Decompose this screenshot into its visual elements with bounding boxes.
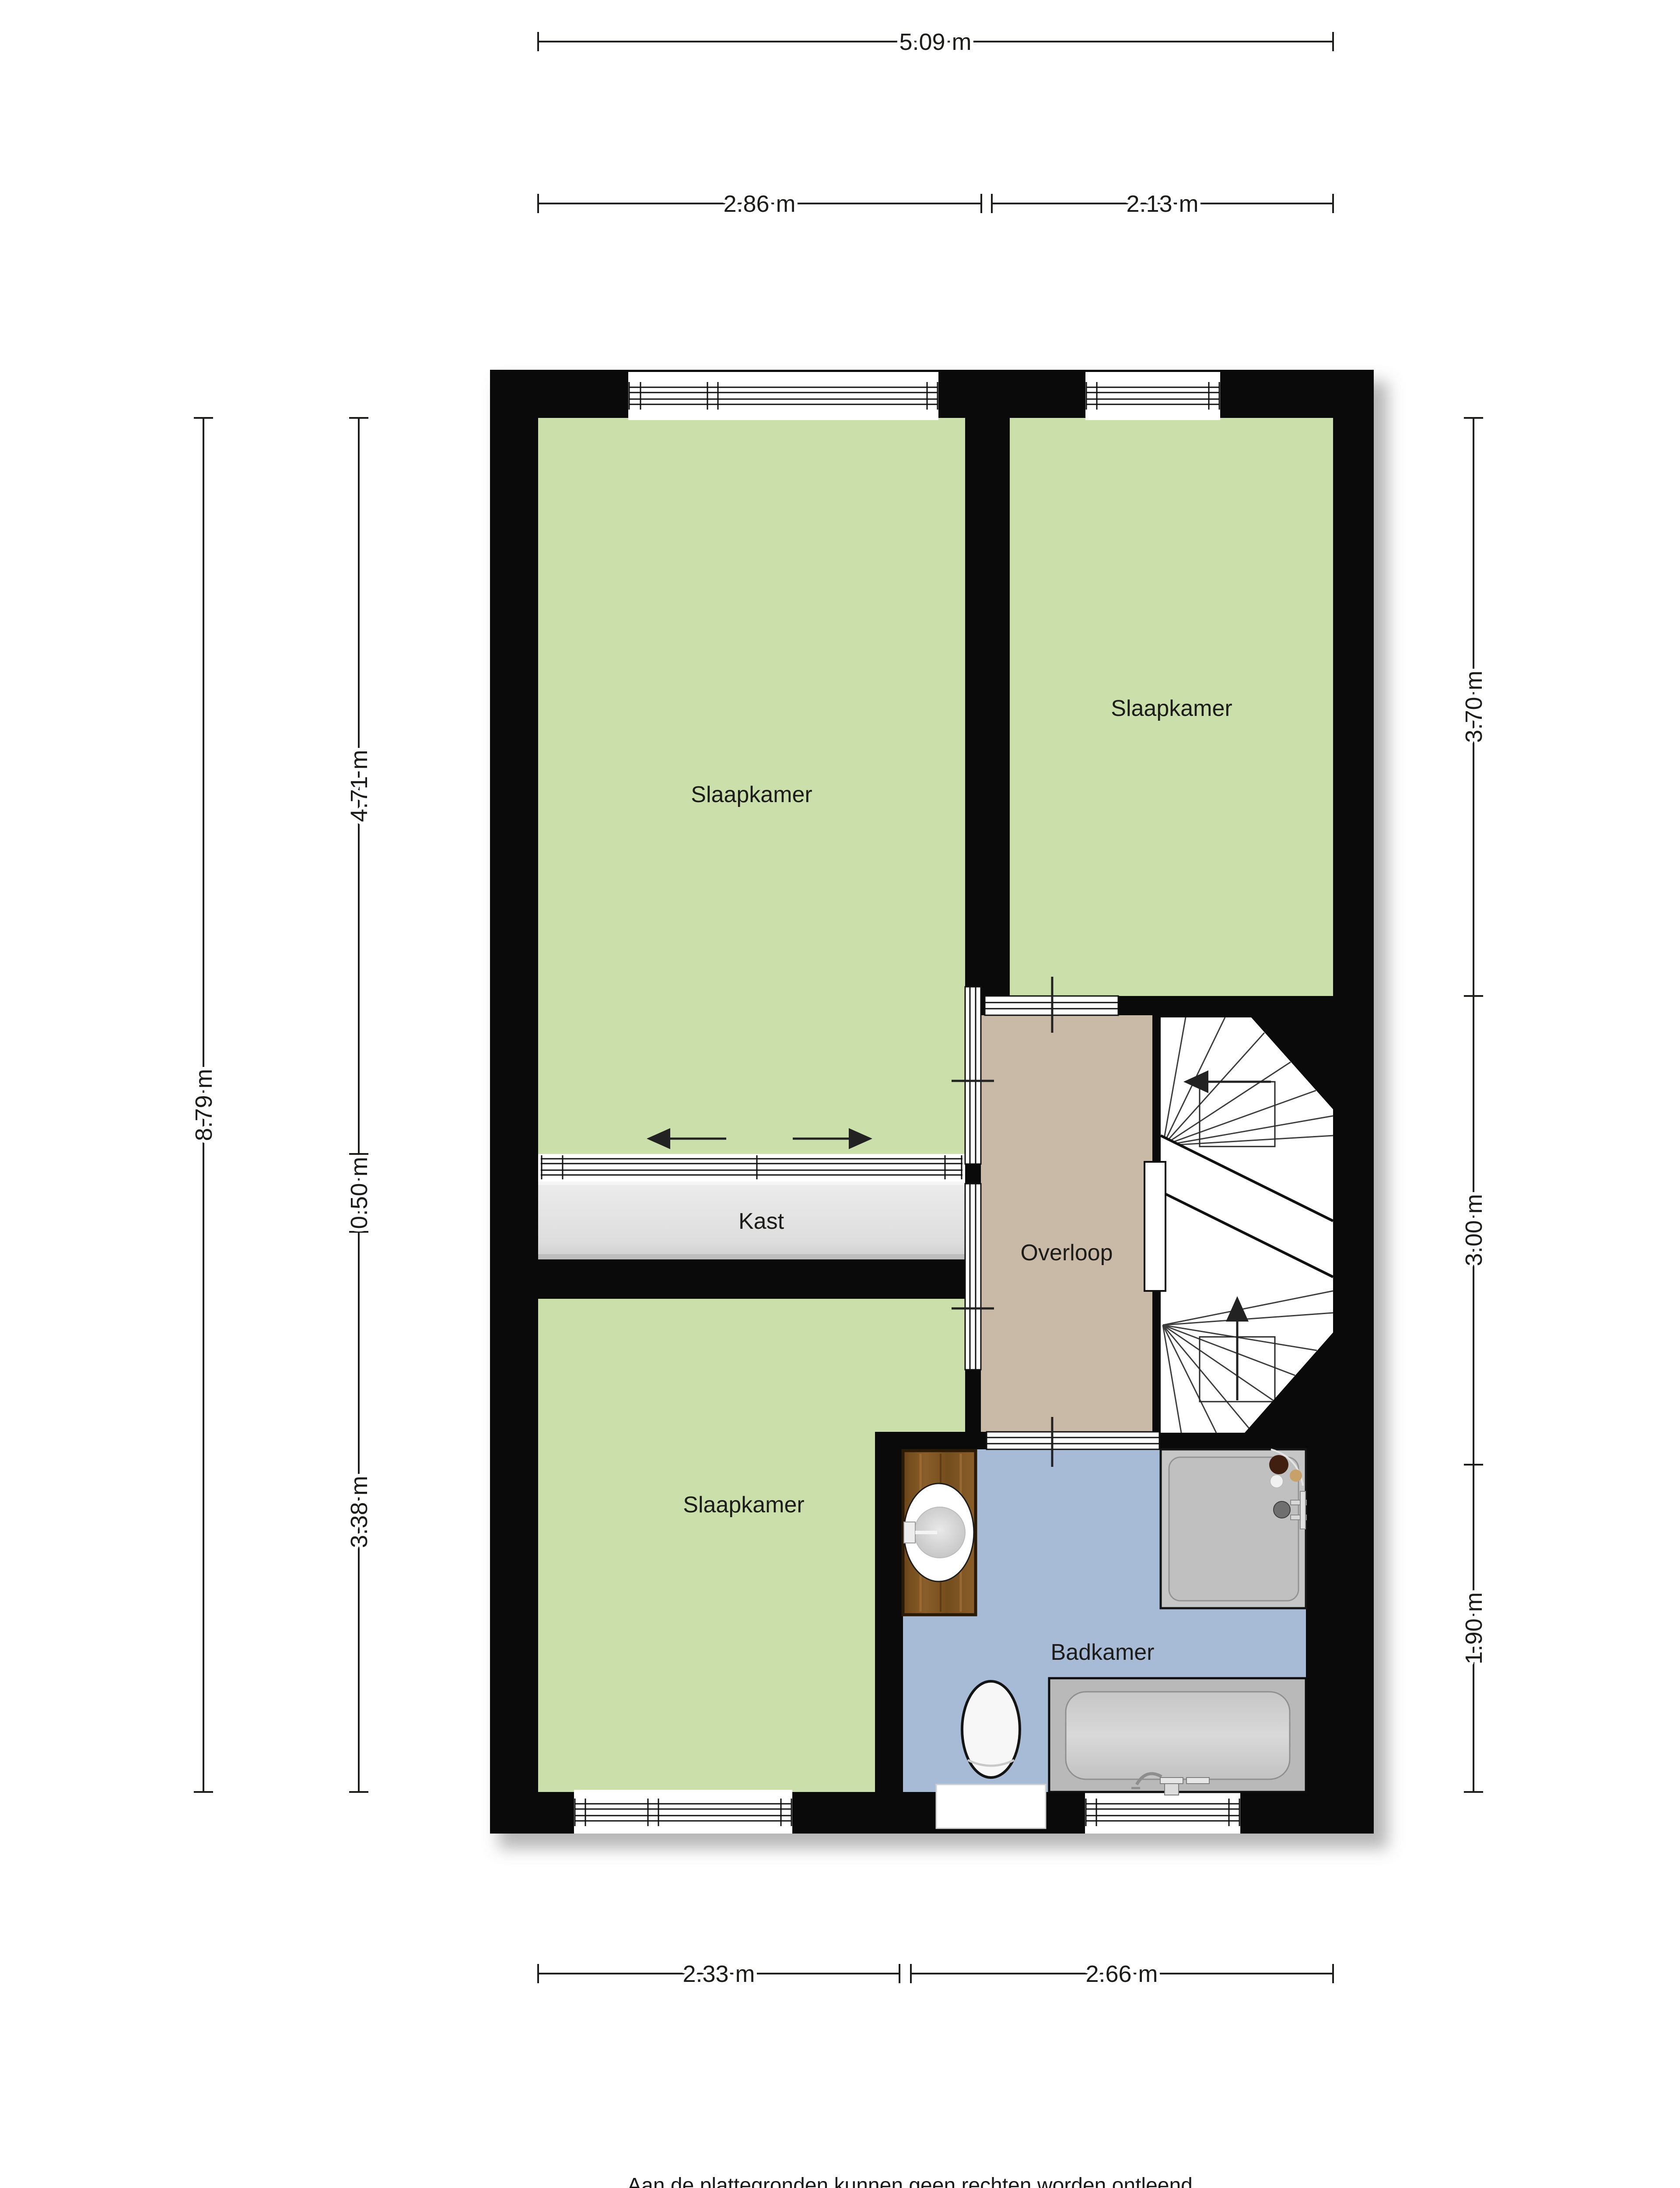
svg-text:2.66 m: 2.66 m	[1085, 1961, 1158, 1987]
label-slaapkamer-top-right: Slaapkamer	[1111, 696, 1232, 721]
svg-text:2.13 m: 2.13 m	[1126, 191, 1198, 217]
svg-text:3.70 m: 3.70 m	[1461, 670, 1487, 743]
window-top-left	[628, 372, 938, 420]
room-overloop	[981, 1015, 1152, 1432]
label-slaapkamer-bottom-left: Slaapkamer	[683, 1492, 804, 1518]
floorplan-page: Slaapkamer Slaapkamer Slaapkamer Kast Ov…	[0, 0, 1680, 2188]
label-kast: Kast	[738, 1209, 784, 1234]
footer-disclaimer: Aan de plattegronden kunnen geen rechten…	[627, 2174, 1193, 2188]
label-slaapkamer-top-left: Slaapkamer	[691, 782, 812, 807]
shower	[1161, 1449, 1306, 1608]
svg-text:1.90 m: 1.90 m	[1461, 1592, 1487, 1664]
svg-text:4.71 m: 4.71 m	[346, 750, 372, 822]
floorplan-drawing: Slaapkamer Slaapkamer Slaapkamer Kast Ov…	[0, 0, 1680, 2188]
sliding-door-track	[538, 1154, 965, 1182]
svg-text:8.79 m: 8.79 m	[191, 1069, 217, 1141]
svg-text:2.86 m: 2.86 m	[723, 191, 795, 217]
window-top-right	[1085, 372, 1220, 420]
vanity-unit	[903, 1451, 976, 1615]
svg-text:2.33 m: 2.33 m	[682, 1961, 755, 1987]
bathtub	[1049, 1678, 1306, 1795]
label-overloop: Overloop	[1021, 1240, 1113, 1266]
window-bottom-right	[1085, 1790, 1240, 1834]
svg-text:0.50 m: 0.50 m	[346, 1157, 372, 1229]
label-badkamer: Badkamer	[1051, 1640, 1155, 1665]
door-stairs	[1144, 1162, 1165, 1291]
svg-text:3.00 m: 3.00 m	[1461, 1194, 1487, 1266]
svg-text:3.38 m: 3.38 m	[346, 1476, 372, 1548]
shampoo-bottle	[1269, 1455, 1288, 1474]
svg-text:5.09 m: 5.09 m	[899, 29, 971, 55]
window-bottom-left	[574, 1790, 792, 1834]
sink-basin	[904, 1483, 974, 1581]
